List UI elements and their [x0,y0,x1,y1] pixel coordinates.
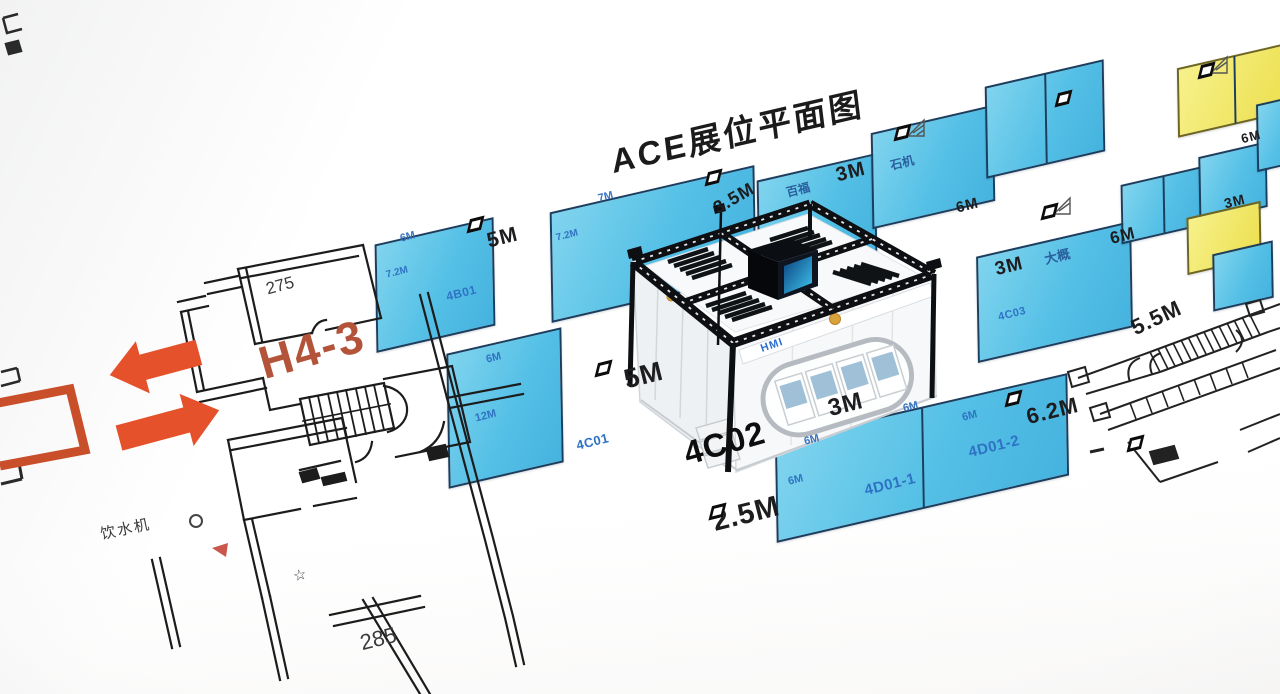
left-arrow-icon [103,326,206,402]
floor-plan-canvas: HMI [0,0,1280,694]
booth-divider [921,407,925,508]
booth-divider [1163,176,1166,234]
booth-divider [1233,56,1236,124]
room-number: 285 [357,622,399,656]
dim-label: 5M [621,356,667,396]
booth-e8 [1212,240,1273,311]
pillar-marker [594,360,612,378]
star-icon: ☆ [291,565,308,586]
dim-label: 5.5M [1127,295,1186,341]
booth-divider [1044,74,1048,164]
hall-label: H4-3 [253,308,371,390]
corner-marks [1,14,22,484]
dim-label: 3M [825,387,866,423]
room-number: 275 [264,273,297,300]
pillar-marker [1126,435,1144,453]
red-door-swing [212,543,228,557]
booth-id: 4C01 [575,430,611,453]
booth-sign-text: HMI [759,336,785,355]
booth-4b01 [375,217,496,353]
water-dispenser-label: 饮水机 [98,513,152,544]
pillar-marker [1040,203,1058,221]
right-arrow-icon [112,385,226,464]
highlight-booth-label: 4C02 [679,413,769,472]
booth-72m [550,165,757,323]
booth-4c01 [446,327,563,488]
orange-bracket [0,389,85,466]
booth-e3-pair [985,59,1105,178]
booth-4d01-pair [775,373,1069,543]
booth-4c03 [976,221,1133,363]
